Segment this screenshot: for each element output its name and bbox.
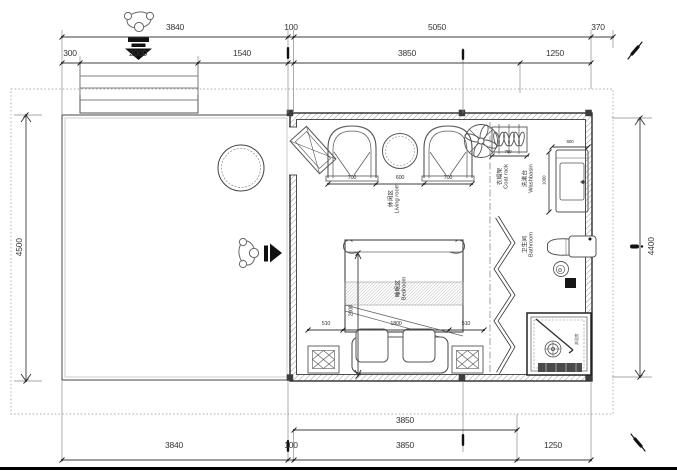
dim-bed-2000: 2000	[349, 298, 354, 324]
dim-bottom-3840: 3840	[154, 441, 194, 450]
dim-bed-1800: 1800	[382, 322, 410, 327]
coat-rack-label: 衣帽架Coat rack	[498, 154, 511, 198]
dim-top-5050: 5050	[417, 23, 457, 32]
dim-bottom-1250: 1250	[533, 441, 573, 450]
pen-mark-icon	[631, 434, 645, 451]
dim-top2-2000: 2000	[118, 49, 158, 58]
dim-top-370: 370	[578, 23, 618, 32]
dim-basin-1000: 1000	[543, 167, 548, 193]
dim-bottom-3850: 3850	[385, 441, 425, 450]
coffee-table	[383, 134, 418, 169]
washbasin-label: 洗漱台Washbasin	[523, 156, 536, 200]
bedroom-label: 睡眠区Bedroom	[396, 266, 409, 310]
shower-room	[527, 313, 591, 375]
dim-top2-1540: 1540	[222, 49, 262, 58]
dim-bottom-3850-inner: 3850	[385, 416, 425, 425]
dim-bed-510-right: 510	[452, 322, 480, 327]
dim-right-4400: 4400	[647, 231, 656, 261]
pen-mark-icon	[628, 42, 642, 59]
dim-basin-500: 500	[556, 140, 584, 145]
dim-bed-510-left: 510	[312, 322, 340, 327]
toilet	[548, 236, 597, 257]
entrance-stairs	[80, 63, 198, 113]
entrance-person-icon	[124, 10, 153, 31]
dim-top2-1250: 1250	[535, 49, 575, 58]
floor-plan-drawing	[0, 0, 677, 473]
floor-plan-canvas: 3840 100 5050 370 300 2000 1540 3850 125…	[0, 0, 677, 473]
dim-top-3840: 3840	[155, 23, 195, 32]
dim-top-100: 100	[275, 23, 307, 32]
pen-mark-icon	[630, 245, 639, 249]
bench-cushion-left	[356, 329, 388, 362]
dim-chair-left-700: 700	[338, 176, 366, 181]
dim-chair-right-700: 700	[434, 176, 462, 181]
dim-bottom-100: 100	[275, 441, 307, 450]
bathroom-label: 卫生间Bathroom	[523, 222, 536, 266]
round-table	[218, 145, 264, 191]
bottom-border-bar	[0, 467, 677, 470]
dim-top2-300: 300	[50, 49, 90, 58]
entry-door-opening	[289, 127, 298, 175]
bath-fixture-block	[565, 278, 576, 288]
dim-rack-750: 750	[496, 150, 520, 155]
shower-label: 淋浴房	[575, 325, 579, 353]
floor-drain-icon	[545, 341, 561, 357]
dim-top2-3850: 3850	[387, 49, 427, 58]
bench-cushion-right	[403, 329, 435, 362]
living-room-label: 休闲区Living room	[389, 176, 402, 220]
dim-left-4500: 4500	[15, 232, 24, 262]
